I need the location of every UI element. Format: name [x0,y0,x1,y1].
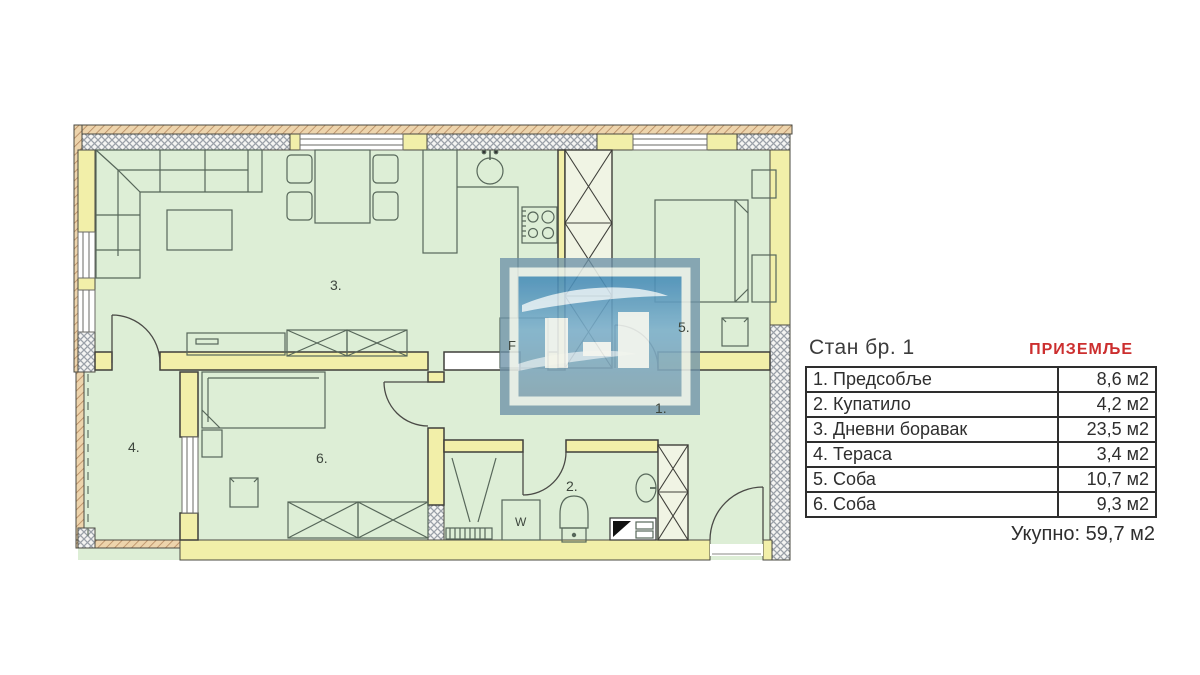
room-name: 5. Соба [806,467,1058,492]
room-name: 4. Тераса [806,442,1058,467]
room-name: 3. Дневни боравак [806,417,1058,442]
total-area: Укупно: 59,7 м2 [805,523,1157,546]
floorplan-page: 3. 4. 5. 6. 1. 2. F W Стан бр. 1 ПРИЗЕМЉ… [0,0,1200,675]
room-name: 1. Предсобље [806,367,1058,392]
table-row: 2. Купатило 4,2 м2 [806,392,1156,417]
label-room: 6. [316,450,328,466]
label-bedroom: 5. [678,319,690,335]
table-row: 5. Соба 10,7 м2 [806,467,1156,492]
info-panel: Стан бр. 1 ПРИЗЕМЉЕ 1. Предсобље 8,6 м2 … [805,336,1157,546]
apartment-title: Стан бр. 1 [809,336,915,360]
table-row: 1. Предсобље 8,6 м2 [806,367,1156,392]
room-area: 10,7 м2 [1058,467,1156,492]
label-terrace: 4. [128,439,140,455]
floor-label: ПРИЗЕМЉЕ [1029,341,1133,359]
panel-title-row: Стан бр. 1 ПРИЗЕМЉЕ [805,336,1157,366]
logo-watermark [500,258,700,415]
room-area: 4,2 м2 [1058,392,1156,417]
table-row: 6. Соба 9,3 м2 [806,492,1156,517]
label-hall: 1. [655,400,667,416]
label-washer: W [515,515,527,529]
room-name: 2. Купатило [806,392,1058,417]
label-living: 3. [330,277,342,293]
table-row: 4. Тераса 3,4 м2 [806,442,1156,467]
room-area: 8,6 м2 [1058,367,1156,392]
label-bath: 2. [566,478,578,494]
label-fridge: F [508,338,516,353]
room-name: 6. Соба [806,492,1058,517]
room-area: 3,4 м2 [1058,442,1156,467]
area-table: 1. Предсобље 8,6 м2 2. Купатило 4,2 м2 3… [805,366,1157,518]
table-row: 3. Дневни боравак 23,5 м2 [806,417,1156,442]
room-area: 9,3 м2 [1058,492,1156,517]
room-area: 23,5 м2 [1058,417,1156,442]
